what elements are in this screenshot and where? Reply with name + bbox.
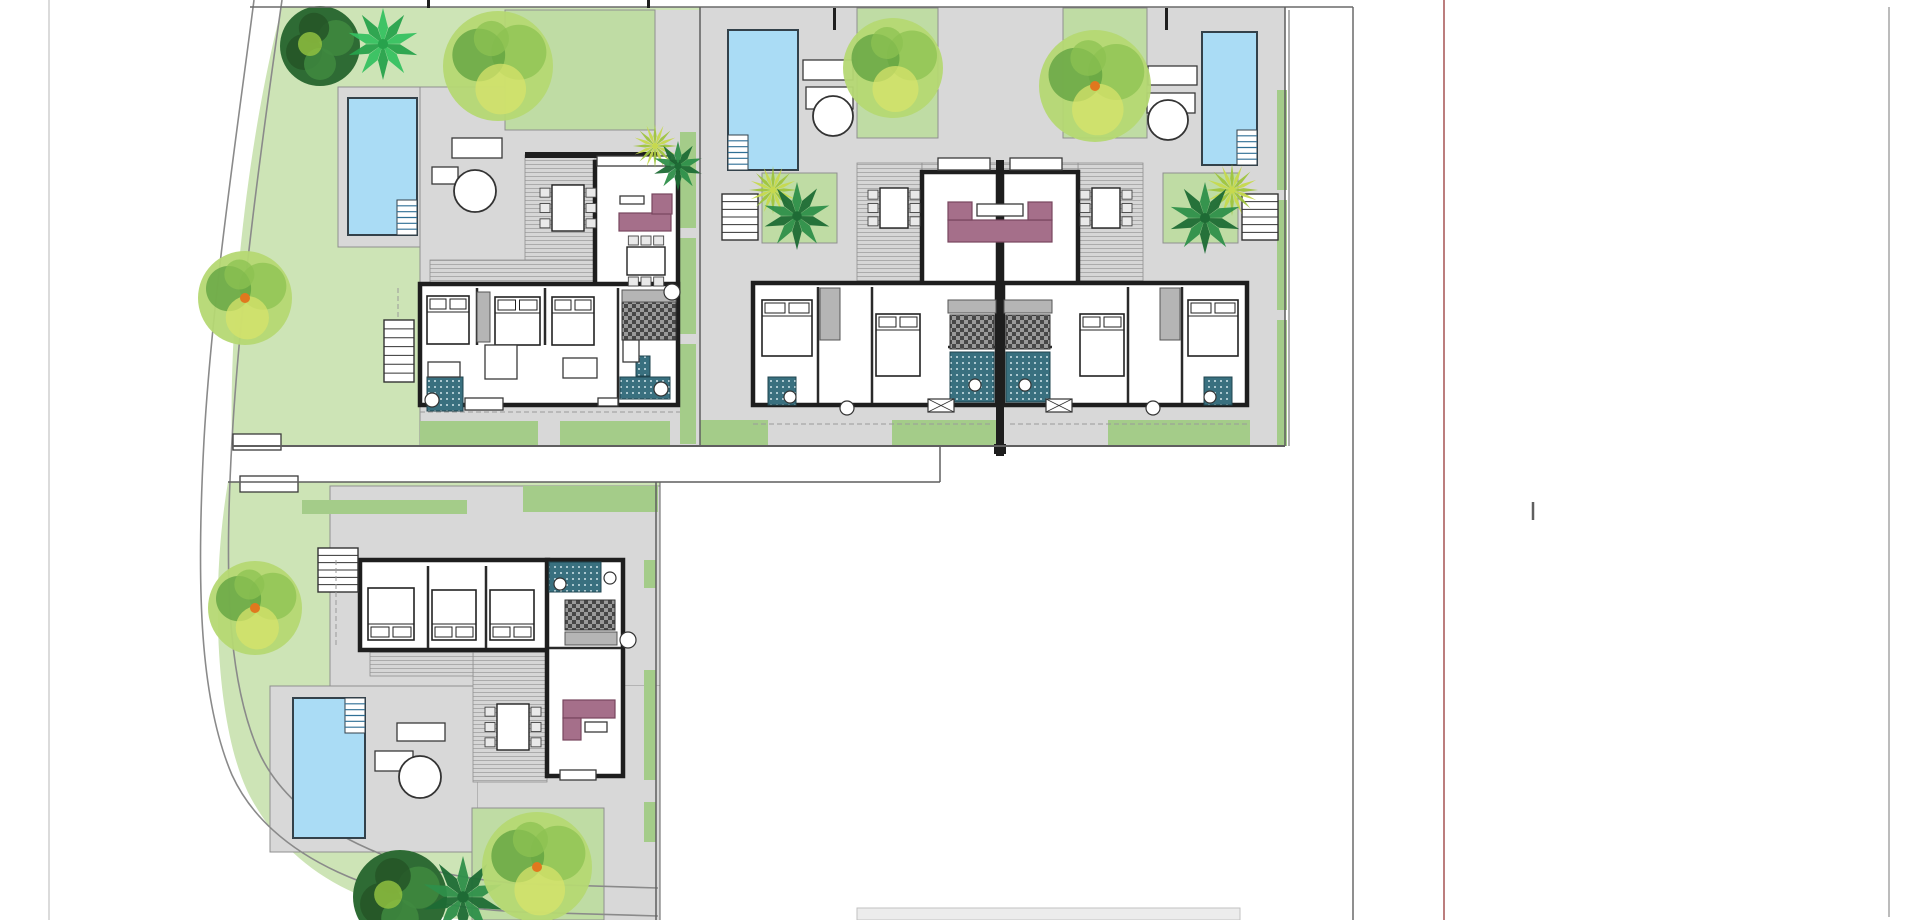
chair xyxy=(1080,190,1090,199)
duplex-table-right xyxy=(1080,188,1132,228)
counter xyxy=(820,288,840,340)
hedge-plot1-east-2 xyxy=(680,238,696,334)
table-top xyxy=(880,188,908,228)
chair xyxy=(540,188,550,197)
villa1-dining-table xyxy=(627,236,665,286)
fixture xyxy=(1146,401,1160,415)
pillow xyxy=(450,299,466,309)
parasol xyxy=(1148,100,1188,140)
chair xyxy=(540,219,550,228)
pillow xyxy=(1083,317,1100,327)
fixture xyxy=(840,401,854,415)
palm-center xyxy=(792,211,802,221)
bush-lobe xyxy=(298,32,322,56)
coffee-table xyxy=(977,204,1023,216)
gate xyxy=(233,434,281,450)
tree-round xyxy=(1039,30,1151,142)
hedge-plot4-top-b xyxy=(523,486,658,512)
duplex-stair-right xyxy=(1242,194,1278,240)
table-top xyxy=(552,185,584,231)
sofa-section xyxy=(652,194,672,214)
chair xyxy=(868,190,878,199)
sofa-section xyxy=(1028,202,1052,220)
tree-lobe xyxy=(224,259,254,289)
palm-center xyxy=(1228,186,1235,193)
chair xyxy=(1080,217,1090,226)
palm-center xyxy=(378,39,388,49)
chair xyxy=(910,190,920,199)
wall-stub xyxy=(427,0,430,8)
tree-lobe xyxy=(1072,84,1124,136)
chair xyxy=(485,707,495,716)
counter xyxy=(477,292,490,342)
table-top xyxy=(497,704,529,750)
counter xyxy=(1160,288,1180,340)
pillow xyxy=(498,300,516,310)
palm-center xyxy=(652,143,658,149)
gate xyxy=(240,476,298,492)
wc xyxy=(554,578,566,590)
wc xyxy=(1019,379,1031,391)
porch xyxy=(465,398,503,410)
sofa-section xyxy=(948,202,972,220)
bottom-right-strip xyxy=(857,908,1240,920)
kitchen-tiles xyxy=(950,315,994,349)
bathroom-tiles xyxy=(1006,352,1050,402)
sofa-section xyxy=(563,700,615,718)
table-top xyxy=(627,247,665,275)
chair xyxy=(641,236,651,245)
hedge-plot4-east-2 xyxy=(644,670,656,780)
bathroom-tiles xyxy=(950,352,994,402)
bed xyxy=(368,588,414,640)
bed xyxy=(552,297,594,345)
pillow xyxy=(456,627,473,637)
tree-round xyxy=(198,251,292,345)
parasol xyxy=(399,756,441,798)
wc xyxy=(425,393,439,407)
bed xyxy=(427,296,469,344)
palm-center xyxy=(675,163,682,170)
wall-stub xyxy=(833,8,836,30)
site-plan-drawing xyxy=(0,0,1920,920)
wc xyxy=(604,572,616,584)
wall-stub xyxy=(647,0,650,8)
counter xyxy=(1004,300,1052,313)
coffee-table xyxy=(585,722,607,732)
window-well xyxy=(928,399,954,412)
tree-round xyxy=(443,11,553,121)
table-top xyxy=(1092,188,1120,228)
pool-plot2 xyxy=(728,30,798,170)
pillow xyxy=(430,299,446,309)
villa4-stair xyxy=(318,548,358,592)
tree-lobe xyxy=(226,296,269,339)
chair xyxy=(628,277,638,286)
pillow xyxy=(493,627,510,637)
sink xyxy=(623,340,639,362)
pillow xyxy=(575,300,591,310)
tree-trunk xyxy=(532,862,542,872)
sunbed xyxy=(397,723,445,741)
sunbed xyxy=(432,167,458,184)
tree-lobe xyxy=(514,865,565,916)
tree-lobe xyxy=(1070,40,1106,76)
tree-trunk xyxy=(240,293,250,303)
chair xyxy=(531,738,541,747)
bed xyxy=(876,314,920,376)
chair xyxy=(1080,204,1090,213)
tree-trunk xyxy=(1090,81,1100,91)
kitchen-tiles xyxy=(1006,315,1050,349)
chair xyxy=(654,236,664,245)
villa1-deck-table xyxy=(540,185,596,231)
tree-round xyxy=(482,812,592,920)
chair xyxy=(868,204,878,213)
tree-bush xyxy=(280,6,360,86)
bed xyxy=(495,297,540,345)
tree-lobe xyxy=(873,66,919,112)
tree-round xyxy=(208,561,302,655)
pillow xyxy=(514,627,531,637)
site-plan-page xyxy=(0,0,1920,920)
pillow xyxy=(371,627,389,637)
pool-plot3 xyxy=(1202,32,1257,165)
porch xyxy=(598,398,618,406)
chair xyxy=(586,204,596,213)
kitchen-tiles xyxy=(565,600,615,630)
chair xyxy=(1122,204,1132,213)
chair xyxy=(868,217,878,226)
counter xyxy=(948,300,996,313)
sofa-section xyxy=(619,213,671,231)
counter xyxy=(565,632,617,645)
tree-lobe xyxy=(234,569,264,599)
chair xyxy=(540,204,550,213)
pillow xyxy=(1215,303,1235,313)
bed xyxy=(432,590,476,640)
pillow xyxy=(765,303,785,313)
pillow xyxy=(520,300,538,310)
pillow xyxy=(879,317,896,327)
chair xyxy=(1122,190,1132,199)
chair xyxy=(485,738,495,747)
villa1-stair xyxy=(384,320,414,382)
tree-lobe xyxy=(475,64,526,115)
plot1-pavement-ne xyxy=(655,10,700,90)
closet xyxy=(563,358,597,378)
bed xyxy=(762,300,812,356)
villa4-deck-band xyxy=(370,650,473,676)
hedge-plot4-east-1 xyxy=(644,560,656,588)
hedge-plot4-top-a xyxy=(302,500,467,514)
chair xyxy=(641,277,651,286)
pillow xyxy=(555,300,571,310)
tree-lobe xyxy=(871,27,903,59)
green-strip-plot1-b xyxy=(560,421,670,445)
villa4-deck-table xyxy=(485,704,541,750)
wc xyxy=(1204,391,1216,403)
canopy xyxy=(560,770,596,780)
fixture xyxy=(664,284,680,300)
green-strip-plot1-a xyxy=(420,421,538,445)
bed xyxy=(490,590,534,640)
hedge-plot4-east-3 xyxy=(644,802,656,842)
closet xyxy=(485,345,517,379)
window-well xyxy=(1046,399,1072,412)
chair xyxy=(1122,217,1132,226)
tree-lobe xyxy=(513,822,548,857)
chair xyxy=(628,236,638,245)
wc xyxy=(784,391,796,403)
wc xyxy=(654,382,668,396)
villa1-deck-band xyxy=(430,260,595,284)
palm-center xyxy=(770,187,777,194)
sunbed xyxy=(452,138,502,158)
palm-center xyxy=(1200,213,1210,223)
pillow xyxy=(1191,303,1211,313)
tree-round xyxy=(843,18,943,118)
canopy xyxy=(938,158,990,170)
sofa-section xyxy=(563,718,581,740)
duplex-table-left xyxy=(868,188,920,228)
pillow xyxy=(789,303,809,313)
chair xyxy=(910,217,920,226)
chair xyxy=(910,204,920,213)
pillow xyxy=(435,627,452,637)
pillow xyxy=(900,317,917,327)
parasol xyxy=(454,170,496,212)
tree-lobe xyxy=(236,606,279,649)
duplex-stair-left xyxy=(722,194,758,240)
wc xyxy=(969,379,981,391)
tree-lobe xyxy=(474,21,509,56)
canopy xyxy=(1010,158,1062,170)
tree-trunk xyxy=(250,603,260,613)
wall-stub xyxy=(1165,8,1168,30)
shelf xyxy=(620,196,644,204)
palm-center xyxy=(457,891,468,902)
pool-plot1 xyxy=(348,98,417,235)
bush-lobe xyxy=(374,881,402,909)
chair xyxy=(485,723,495,732)
chair xyxy=(654,277,664,286)
sunbed xyxy=(1148,66,1197,85)
sink xyxy=(428,362,460,377)
parasol xyxy=(813,96,853,136)
chair xyxy=(586,188,596,197)
bed xyxy=(1080,314,1124,376)
sofa-section xyxy=(948,220,1052,242)
kitchen-tiles xyxy=(622,300,676,340)
fixture xyxy=(620,632,636,648)
pool-plot4 xyxy=(293,698,365,838)
chair xyxy=(531,707,541,716)
pillow xyxy=(393,627,411,637)
hedge-plot1-east-3 xyxy=(680,344,696,444)
chair xyxy=(586,219,596,228)
pillow xyxy=(1104,317,1121,327)
bed xyxy=(1188,300,1238,356)
chair xyxy=(531,723,541,732)
